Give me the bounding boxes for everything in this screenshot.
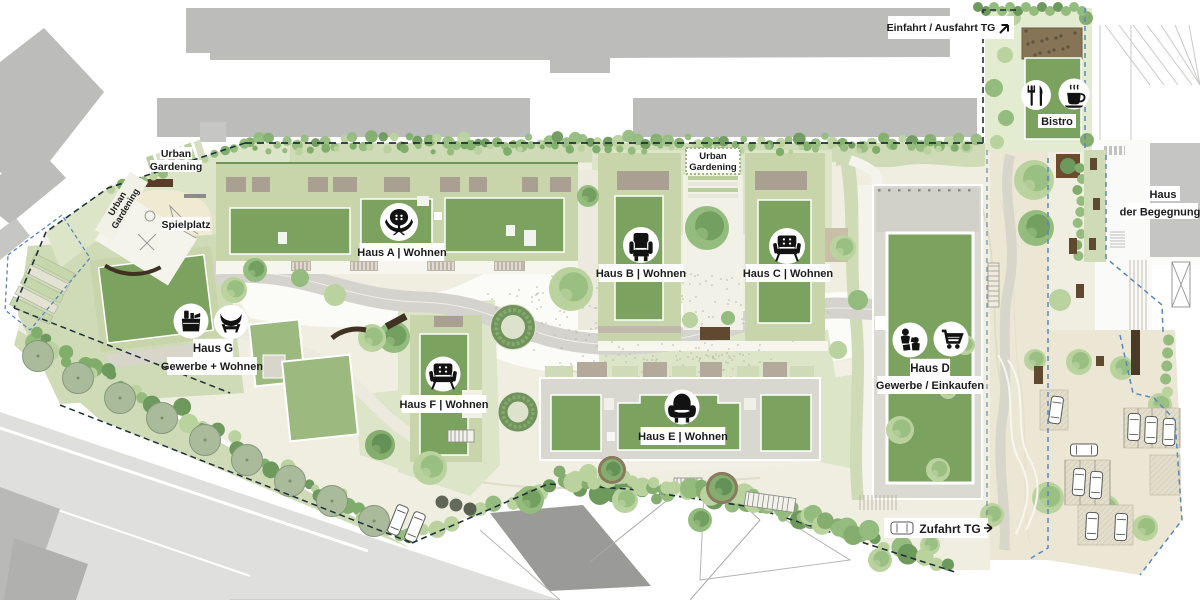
svg-text:Gardening: Gardening	[689, 162, 737, 173]
svg-text:der Begegnung: der Begegnung	[1120, 207, 1200, 219]
svg-text:Haus F | Wohnen: Haus F | Wohnen	[399, 399, 488, 411]
svg-text:Urban: Urban	[699, 151, 727, 162]
svg-text:Haus D: Haus D	[910, 363, 950, 375]
svg-text:Spielplatz: Spielplatz	[161, 219, 210, 231]
svg-text:Zufahrt TG: Zufahrt TG	[919, 522, 980, 536]
svg-text:Haus A | Wohnen: Haus A | Wohnen	[357, 247, 447, 259]
svg-text:Gardening: Gardening	[150, 161, 203, 173]
svg-text:Gewerbe + Wohnen: Gewerbe + Wohnen	[161, 361, 263, 373]
svg-text:Bistro: Bistro	[1041, 116, 1073, 128]
svg-text:Urban: Urban	[161, 148, 191, 160]
svg-text:Haus B | Wohnen: Haus B | Wohnen	[596, 268, 687, 280]
svg-text:Haus G: Haus G	[193, 343, 233, 355]
svg-text:Haus: Haus	[1150, 189, 1177, 201]
svg-text:Gewerbe / Einkaufen: Gewerbe / Einkaufen	[876, 380, 984, 392]
svg-text:Haus C | Wohnen: Haus C | Wohnen	[743, 268, 834, 280]
svg-text:Einfahrt / Ausfahrt TG: Einfahrt / Ausfahrt TG	[887, 22, 996, 34]
svg-text:Haus E | Wohnen: Haus E | Wohnen	[638, 431, 728, 443]
